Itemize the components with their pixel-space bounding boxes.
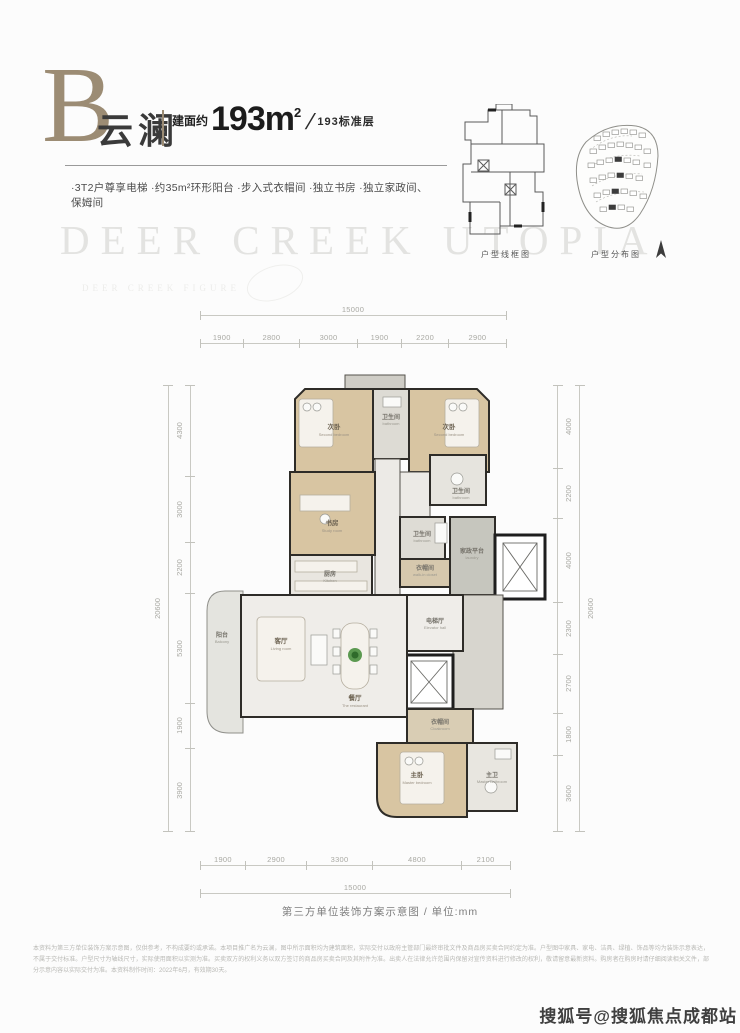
dim-segments: 2300	[558, 602, 579, 654]
dim-value: 5300	[175, 640, 184, 657]
dim-row-total: 15000	[200, 300, 506, 316]
dim-value: 2200	[175, 559, 184, 576]
dim-segments: 5300	[169, 593, 190, 703]
label-second-bedroom-left-en: Second bedroom	[319, 432, 350, 437]
dim-value: 4300	[175, 422, 184, 439]
area-group: 建面约 193m 2 / 193标准层	[172, 102, 375, 136]
dim-col-total: 20600	[579, 385, 601, 832]
dim-segments: 3000	[169, 476, 190, 542]
dim-value: 4000	[564, 552, 573, 569]
dim-strip-top: 15000 190028003000190022002900	[200, 300, 506, 344]
dim-col-segments: 4000220040002300270018003600	[557, 385, 579, 832]
label-master-bedroom-cn: 主卧	[411, 770, 425, 779]
dim-segments: 1900	[200, 333, 244, 343]
label-master-bathroom-cn: 主卫	[486, 771, 498, 779]
label-study-cn: 书房	[326, 518, 340, 527]
dim-value: 1900	[213, 333, 231, 342]
label-second-bedroom-right-cn: 次卧	[443, 422, 457, 431]
label-study-en: Study room	[322, 528, 343, 533]
dim-segments: 2800	[244, 333, 300, 343]
dim-value: 2700	[564, 675, 573, 692]
dim-value: 3000	[175, 501, 184, 518]
dim-row-total: 15000	[200, 878, 510, 894]
feature-list: ·3T2户尊享电梯 ·约35m²环形阳台 ·步入式衣帽间 ·独立书房 ·独立家政…	[71, 180, 431, 210]
label-bathroom-mid-en: bathroom	[414, 538, 432, 543]
dim-segments: 4300	[169, 385, 190, 476]
label-elevator-hall-en: Elevator hall	[424, 625, 446, 630]
dim-value: 2800	[262, 333, 280, 342]
flyer-page: B 云澜 建面约 193m 2 / 193标准层 ·3T2户尊享电梯 ·约35m…	[0, 0, 740, 1033]
dim-value: 20600	[153, 598, 162, 619]
label-bathroom-top-en: bathroom	[383, 421, 401, 426]
dim-value: 20600	[586, 598, 595, 619]
dim-segments: 4000	[558, 385, 579, 469]
dim-segments: 2200	[401, 333, 449, 343]
label-bathroom-mid-cn: 卫生间	[413, 530, 431, 538]
dim-segments: 1900	[358, 333, 402, 343]
balcony-area	[207, 591, 243, 733]
area-prefix: 建面约	[172, 112, 208, 136]
dim-segments: 1900	[200, 855, 246, 865]
dim-segments: 2200	[169, 542, 190, 593]
dim-value: 15000	[342, 305, 364, 314]
brand-watermark-sub: DEER CREEK FIGURE	[82, 283, 240, 293]
label-elevator-hall-cn: 电梯厅	[426, 617, 444, 625]
dim-col-segments: 430030002200530019003900	[169, 385, 191, 832]
dim-total: 20600	[580, 385, 601, 832]
distribution-label: 户型分布图	[568, 249, 664, 260]
dim-value: 1900	[214, 855, 232, 864]
dim-strip-bottom: 19002900330048002100 15000	[200, 850, 510, 894]
dim-row-segments: 19002900330048002100	[200, 850, 510, 866]
dim-value: 1800	[564, 726, 573, 743]
unit-wireframe-diagram	[458, 104, 554, 246]
dim-segments: 4000	[558, 519, 579, 603]
dim-value: 2900	[469, 333, 487, 342]
dim-segments: 1900	[169, 703, 190, 748]
dim-value: 2300	[564, 620, 573, 637]
dim-value: 2100	[477, 855, 495, 864]
label-living-en: Living room	[271, 646, 292, 651]
dim-value: 2200	[564, 485, 573, 502]
dim-segments: 3000	[299, 333, 357, 343]
label-bathroom-right-en: bathroom	[453, 495, 471, 500]
area-suffix: 193标准层	[317, 113, 374, 136]
dim-segments: 3600	[558, 756, 579, 832]
corridor-2	[400, 472, 430, 517]
dim-segments: 2700	[558, 654, 579, 713]
dim-value: 3600	[564, 786, 573, 803]
label-laundry-cn: 家政平台	[460, 547, 484, 555]
dim-value: 3300	[331, 855, 349, 864]
dim-strip-right: 4000220040002300270018003600 20600	[557, 385, 601, 832]
dim-value: 15000	[344, 883, 366, 892]
title-divider	[162, 110, 164, 146]
dim-segments: 4800	[373, 855, 461, 865]
label-cloakroom-cn: 衣帽间	[431, 718, 449, 726]
label-master-bedroom-en: Master bedroom	[402, 780, 432, 785]
dim-value: 4800	[408, 855, 426, 864]
north-compass-icon	[652, 238, 670, 262]
label-second-bedroom-left-cn: 次卧	[328, 422, 342, 431]
wireframe-label: 户型线框图	[458, 249, 554, 260]
dim-segments: 2200	[558, 469, 579, 519]
plan-name: 云澜	[97, 102, 179, 154]
label-dining-cn: 餐厅	[348, 693, 363, 702]
area-slash: /	[303, 109, 318, 135]
label-dining-en: The restaurant	[342, 703, 369, 708]
header-rule	[65, 165, 447, 166]
sohu-watermark: 搜狐号@搜狐焦点成都站	[539, 1002, 737, 1027]
dim-row-segments: 190028003000190022002900	[200, 328, 506, 344]
label-laundry-en: laundry	[465, 555, 478, 560]
label-walk-in-closet-en: walk-in closet	[413, 572, 438, 577]
label-balcony-cn: 阳台	[216, 631, 228, 639]
label-balcony-en: Balcony	[215, 639, 229, 644]
corridor	[375, 459, 400, 595]
dim-total: 20600	[147, 385, 168, 832]
label-kitchen-en: Kitchen	[323, 578, 336, 583]
unit-distribution-diagram	[568, 116, 668, 240]
label-walk-in-closet-cn: 衣帽间	[416, 564, 434, 572]
label-second-bedroom-right-en: Second bedroom	[434, 432, 465, 437]
label-master-bathroom-en: Master bathroom	[477, 779, 508, 784]
dim-segments: 3900	[169, 749, 190, 832]
dim-segments: 1800	[558, 713, 579, 756]
dim-value: 3900	[175, 782, 184, 799]
dim-value: 1900	[371, 333, 389, 342]
label-bathroom-right-cn: 卫生间	[452, 487, 470, 495]
dim-value: 1900	[175, 718, 184, 735]
duct	[345, 375, 405, 389]
dim-col-total: 20600	[147, 385, 169, 832]
label-living-cn: 客厅	[274, 636, 289, 645]
dim-total: 15000	[200, 305, 506, 315]
area-superscript: 2	[294, 105, 301, 120]
legal-disclaimer: 本资料为第三方单位装饰方案示意图，仅供参考，不构成要约或承诺。本项目推广名为云澜…	[33, 944, 709, 976]
label-bathroom-top-cn: 卫生间	[382, 413, 400, 421]
dim-value: 2900	[267, 855, 285, 864]
area-value: 193m	[211, 102, 294, 136]
label-cloakroom-en: Cloakroom	[430, 726, 450, 731]
dim-value: 3000	[320, 333, 338, 342]
dim-segments: 2900	[246, 855, 307, 865]
room-study	[290, 472, 375, 555]
dim-segments: 2100	[461, 855, 510, 865]
dim-value: 4000	[564, 418, 573, 435]
dim-value: 2200	[416, 333, 434, 342]
dim-total: 15000	[200, 883, 510, 893]
label-kitchen-cn: 厨房	[324, 570, 336, 578]
floor-plan: 次卧 Second bedroom 卫生间 bathroom 次卧 Second…	[195, 367, 555, 837]
dim-segments: 2900	[449, 333, 506, 343]
plan-caption: 第三方单位装饰方案示意图 / 单位:mm	[170, 904, 590, 919]
dim-strip-left: 20600 430030002200530019003900	[147, 385, 191, 832]
dim-segments: 3300	[306, 855, 372, 865]
